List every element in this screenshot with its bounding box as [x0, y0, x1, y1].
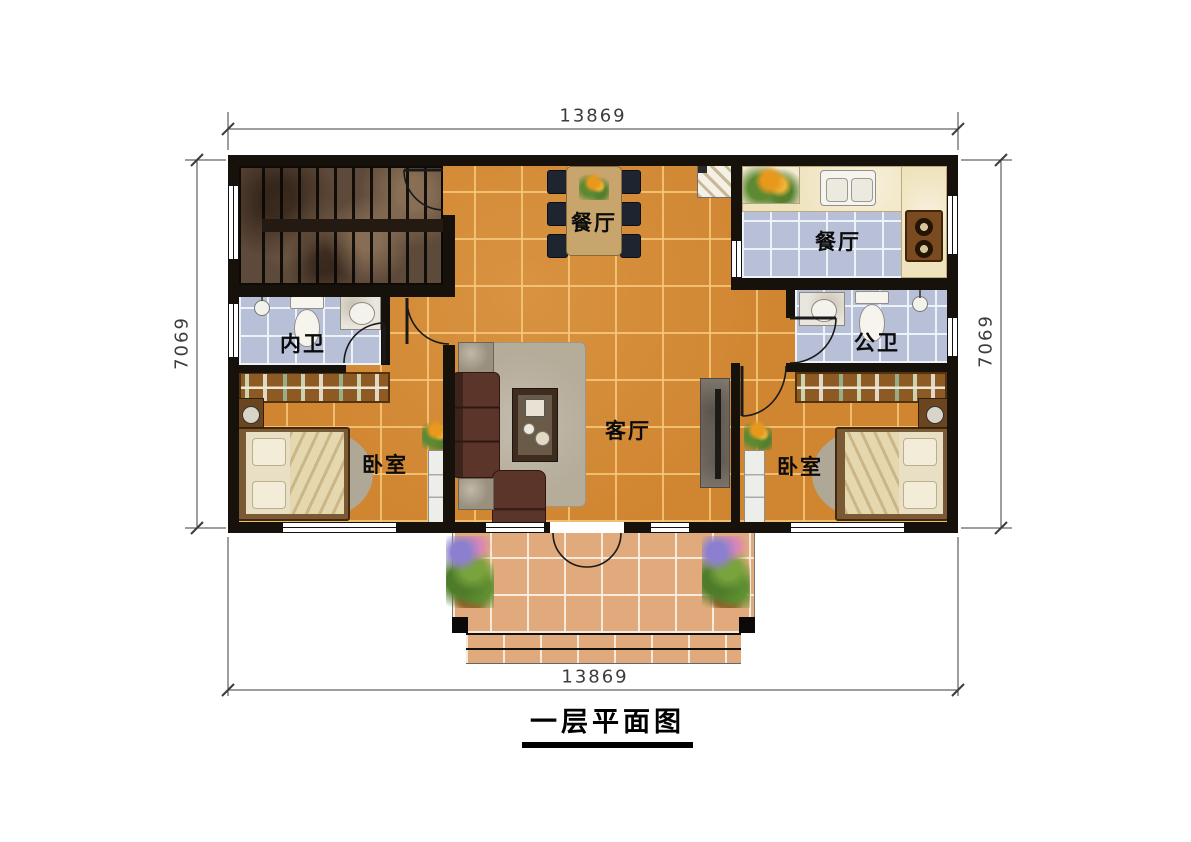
sofa-icon	[452, 372, 500, 478]
dining-chair	[620, 202, 641, 226]
dimension-top: 13869	[559, 106, 626, 127]
pillow	[252, 481, 286, 509]
label-dining-open: 餐厅	[571, 207, 617, 237]
bedroomright-plant-icon	[744, 418, 772, 450]
wall-partition-left	[443, 345, 455, 533]
vanity-counter-left	[340, 294, 381, 330]
wall-innerbath-right	[381, 297, 390, 365]
side-table-top-icon	[458, 342, 494, 374]
pillow	[252, 438, 286, 466]
dining-chair	[547, 234, 568, 258]
pillow	[903, 438, 937, 466]
wall-bedroomright-top	[786, 363, 958, 372]
wall-kitchen-bottom	[731, 278, 958, 290]
sink-basin-right	[851, 178, 873, 202]
dining-chair	[547, 170, 568, 194]
clock-icon	[242, 406, 260, 424]
stair-treads-upper	[262, 168, 443, 219]
window-bedroomleft-bottom	[282, 522, 397, 533]
blanket	[845, 432, 899, 514]
cup-icon	[535, 431, 550, 446]
blanket	[290, 432, 344, 514]
bed-right-icon	[835, 427, 949, 521]
stair-treads-lower	[262, 232, 443, 283]
clock-icon	[926, 406, 944, 424]
fridge-icon	[697, 163, 733, 198]
kitchen-door-opening	[731, 240, 742, 278]
kitchen-shelf-plant-icon	[742, 166, 800, 204]
label-inner-bath: 内卫	[280, 328, 326, 358]
stove-icon	[905, 210, 943, 262]
vanity-basin-right	[811, 299, 837, 322]
tv-cabinet-icon	[700, 378, 730, 488]
tv-screen-icon	[715, 389, 721, 479]
porch-plant-right-icon	[702, 536, 750, 608]
wall-stairs-bottom	[228, 285, 455, 297]
window-bedroomright-bottom	[790, 522, 905, 533]
wall-publicbath-left	[786, 290, 795, 318]
label-living: 客厅	[605, 415, 651, 445]
toilet-tank-left	[290, 296, 324, 309]
wall-partition-right	[731, 363, 740, 522]
toilet-tank-right	[855, 291, 889, 304]
porch-plant-left-icon	[446, 536, 494, 608]
burner-back	[915, 240, 933, 258]
coffee-table-icon	[512, 388, 558, 462]
dimension-left: 7069	[172, 316, 193, 370]
wall-stairs-right	[443, 215, 455, 285]
tray-icon	[525, 399, 545, 417]
dimension-bottom: 13869	[561, 667, 628, 688]
window-living-bottom-left	[485, 522, 545, 533]
window-living-bottom-right	[650, 522, 690, 533]
wall-innerbath-bottom	[228, 365, 346, 373]
sink-basin-left	[826, 178, 848, 202]
burner-front	[915, 218, 933, 236]
cup-icon	[523, 423, 535, 435]
shower-icon-left	[254, 300, 270, 316]
shower-icon-right	[912, 296, 928, 312]
bed-left-icon	[236, 427, 350, 521]
label-kitchen: 餐厅	[815, 226, 861, 256]
plan-title: 一层平面图	[522, 700, 693, 748]
label-bedroom-right: 卧室	[777, 451, 823, 481]
window-stairs-left	[228, 185, 239, 260]
label-public-bath: 公卫	[854, 327, 900, 357]
porch-steps	[466, 633, 741, 664]
stair-landing-rail	[262, 219, 443, 232]
window-publicbath-right	[947, 317, 958, 357]
label-bedroom-left: 卧室	[362, 449, 408, 479]
dining-chair	[620, 170, 641, 194]
porch-pillar-left	[452, 617, 468, 633]
pillow	[903, 481, 937, 509]
vanity-basin-left	[349, 302, 375, 325]
dimension-right: 7069	[976, 314, 997, 368]
window-innerbath-left	[228, 303, 239, 358]
wall-top	[228, 155, 958, 166]
side-table-bottom-icon	[458, 478, 494, 510]
porch-pillar-right	[739, 617, 755, 633]
wall-kitchen-left-upper	[731, 166, 742, 240]
bedroomright-cabinet-icon	[744, 450, 765, 528]
kitchen-sink-icon	[820, 170, 876, 206]
dining-chair	[620, 234, 641, 258]
shower-stem-right	[919, 290, 921, 298]
main-entrance-opening	[550, 522, 624, 533]
dining-centerpiece-icon	[579, 172, 609, 200]
vanity-counter-right	[799, 292, 845, 326]
dining-chair	[547, 202, 568, 226]
floor-plan-canvas: 餐厅 餐厅 内卫 公卫 客厅 卧室 卧室 13869 13869 7069 70…	[0, 0, 1191, 842]
window-kitchen-right	[947, 195, 958, 255]
nightstand-right-icon	[918, 398, 948, 428]
